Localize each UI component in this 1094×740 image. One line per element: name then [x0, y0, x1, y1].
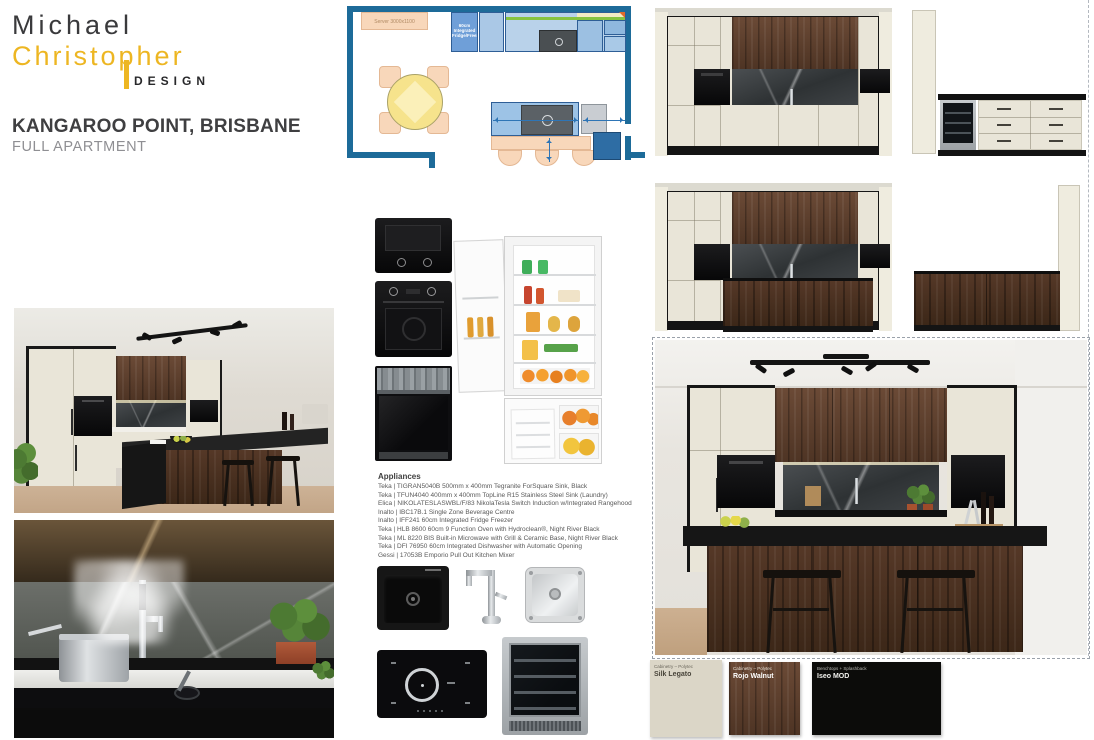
elev-soffit — [655, 8, 892, 16]
elev-panel-line — [818, 105, 819, 148]
plan-wall-left — [347, 6, 353, 158]
elev-kickboard — [667, 146, 879, 155]
microwave-dial — [397, 258, 406, 267]
dishwasher-racks — [377, 368, 450, 390]
drawer-handle — [1049, 140, 1063, 142]
brand-accent-bar — [124, 60, 129, 89]
island-panel-line — [811, 546, 812, 652]
cabinet-line — [690, 450, 775, 451]
fridge-cabinet — [504, 236, 602, 396]
dishwasher-kick — [379, 452, 448, 459]
plan-dining-table — [387, 74, 443, 130]
appliance-item: Teka | HLB 8600 60cm 9 Function Oven wit… — [378, 526, 633, 535]
black-sink-product — [377, 566, 449, 630]
track-light-mount — [823, 354, 869, 359]
drain-centre — [411, 597, 415, 601]
brand-name-line2: Christopher — [12, 41, 185, 72]
swatch-iseo-mod: Benchtops + Splashback Iseo MOD — [812, 662, 941, 735]
corner-screw — [578, 571, 582, 575]
photo-appliance-niche — [190, 400, 218, 422]
selection-marquee-edge — [1088, 0, 1089, 656]
photo-splashback — [116, 400, 186, 428]
bev-shelf — [945, 132, 971, 134]
hero-kitchen-photo — [655, 340, 1087, 655]
bottle — [467, 317, 474, 337]
oven-glass — [385, 308, 442, 350]
elev-panel-line — [778, 105, 779, 148]
undercabinet-light — [116, 400, 186, 403]
beverage-centre-product — [502, 637, 588, 735]
track-light-bar — [750, 360, 930, 365]
swatch-category: Benchtops + Splashback — [817, 666, 941, 672]
tap-body — [488, 570, 495, 616]
floor-plan: Server 3000x1100 60cm Integrated Fridge/… — [343, 4, 645, 168]
fruit-drawer — [520, 368, 590, 384]
elev-panel-line — [668, 220, 720, 221]
swatch-silk-legato: Cabinetry – Polytec Silk Legato — [650, 660, 722, 737]
fridge-shelf — [514, 274, 596, 276]
fridge-interior — [513, 245, 595, 389]
food-item — [538, 260, 548, 274]
food-item — [522, 340, 538, 360]
plan-server-label: Server 3000x1100 — [362, 19, 427, 25]
plan-island-overhang — [491, 136, 591, 150]
hero-appliance-niche — [951, 455, 1005, 508]
undercabinet-light — [783, 462, 939, 465]
page-subtitle: FULL APARTMENT — [12, 139, 147, 155]
freezer-drawer — [559, 405, 599, 429]
herb-plant — [310, 660, 334, 684]
drawer-handle — [997, 108, 1011, 110]
plan-wall-bottom — [347, 152, 435, 158]
microwave-dial — [423, 258, 432, 267]
bottle — [487, 317, 494, 337]
cabinet-handle — [71, 409, 73, 435]
sink-brand-mark — [425, 569, 441, 571]
drawer-handle — [997, 140, 1011, 142]
hero-tap — [855, 478, 858, 504]
drawer-handle — [997, 124, 1011, 126]
plan-cabinet-box4 — [604, 36, 626, 52]
elevation-main-run-with-island — [655, 183, 892, 333]
towel — [150, 440, 166, 444]
zone-mark — [447, 682, 455, 684]
swatch-rojo-walnut: Cabinetry – Polytec Rojo Walnut — [729, 662, 800, 735]
tap-base — [482, 616, 501, 624]
plan-fridge-label: 60cm Integrated Fridge/Freezer — [452, 23, 477, 38]
swatch-category: Cabinetry – Polytec — [654, 664, 722, 670]
elev-walnut-uppers — [732, 192, 858, 244]
elev-island-kick — [723, 326, 873, 332]
bev-shelf — [514, 659, 576, 662]
appliance-item: Inalto | IFF241 60cm Integrated Fridge F… — [378, 517, 633, 526]
plan-fridge-cabinet: 60cm Integrated Fridge/Freezer — [451, 12, 478, 52]
appliance-item: Gessi | 17053B Emporio Pull Out Kitchen … — [378, 552, 633, 561]
hero-benchtop — [775, 510, 947, 517]
elevation-beverage-run — [908, 8, 1086, 158]
island-door-line — [797, 281, 798, 326]
elev-microwave — [860, 69, 890, 93]
tap-lever — [495, 592, 508, 600]
oven-display — [406, 289, 420, 294]
appliances-list: Appliances Teka | TIGRAN5040B 500mm x 40… — [378, 472, 633, 560]
elev-oven — [694, 244, 730, 280]
elev-island-kick — [914, 325, 1060, 331]
bev-shelf — [945, 122, 971, 124]
kitchen-render-photo — [14, 308, 334, 513]
oven-handle — [383, 301, 444, 303]
swatch-name: Rojo Walnut — [733, 673, 800, 681]
zone-mark — [465, 662, 470, 664]
door-rack — [462, 296, 498, 299]
dishwasher-product — [375, 366, 452, 461]
corner-screw — [529, 571, 533, 575]
freezer-section — [504, 398, 602, 464]
food-item — [558, 290, 580, 302]
oven-controls — [82, 400, 104, 402]
freezer-open-door — [511, 409, 556, 460]
brand-name-line1: Michael — [12, 10, 133, 41]
microwave-product — [375, 218, 452, 273]
track-light-spot — [171, 336, 182, 345]
elev-microwave — [860, 244, 890, 268]
food-item — [526, 312, 540, 332]
appliance-item: Inalto | IBC17B.1 Single Zone Beverage C… — [378, 509, 633, 518]
bev-vent — [509, 721, 581, 731]
oven-controls — [729, 461, 763, 464]
page-title: KANGAROO POINT, BRISBANE — [12, 116, 301, 138]
plan-beverage-centre — [593, 132, 621, 160]
freezer-groove — [516, 446, 550, 448]
touch-controls — [417, 710, 447, 712]
plan-cabinet-box2 — [577, 20, 603, 52]
bev-shelf — [945, 112, 971, 114]
elev-oven — [694, 69, 730, 105]
track-light-spot — [841, 365, 854, 375]
oven-product — [375, 281, 452, 357]
elev-panel-line — [1030, 101, 1031, 149]
induction-cooktop-product — [377, 650, 487, 718]
drawer-handle — [1049, 108, 1063, 110]
timber-floor — [655, 608, 707, 655]
freezer-drawer — [559, 433, 599, 459]
elev-walnut-uppers — [732, 17, 858, 69]
cooktop-dial-ring — [405, 668, 439, 702]
elev-facade — [667, 16, 879, 149]
bev-shelf — [514, 691, 576, 694]
swatch-category: Cabinetry – Polytec — [733, 666, 800, 672]
brand-name-line3: DESIGN — [134, 74, 210, 88]
appliance-item: Teka | TIGRAN5040B 500mm x 400mm Tegrani… — [378, 483, 633, 492]
hero-walnut-uppers — [775, 388, 947, 462]
stool-rail — [773, 608, 829, 611]
food-item — [568, 316, 580, 332]
dishwasher-door — [379, 396, 448, 450]
elev-panel-line — [858, 17, 859, 148]
plan-dimension-h2 — [583, 120, 625, 121]
dial-dot — [421, 684, 424, 687]
corner-screw — [529, 616, 533, 620]
fridge-product — [456, 236, 602, 464]
appliance-item: Teka | ML 8220 BIS Built-in Microwave wi… — [378, 535, 633, 544]
stool-rail — [907, 608, 963, 611]
door-line — [832, 388, 833, 462]
elev-splashback — [732, 244, 858, 280]
dishwasher-top-edge — [377, 390, 450, 394]
sink-drain — [549, 588, 561, 600]
elev-tap — [790, 89, 793, 105]
food-item — [536, 288, 544, 304]
fruit-bowl — [170, 436, 192, 443]
plan-stool — [498, 150, 522, 166]
bev-shelf — [514, 707, 576, 710]
island-benchtop — [683, 526, 1047, 546]
elev-kickboard — [938, 150, 1086, 156]
elev-drawer-stack — [978, 100, 1082, 150]
track-light-spot — [783, 367, 796, 377]
corner-screw — [578, 616, 582, 620]
fridge-shelf — [514, 304, 596, 306]
island-panel-line — [917, 546, 918, 652]
freezer-groove — [516, 422, 550, 424]
elev-oven-controls — [701, 73, 723, 76]
plan-marker — [619, 12, 625, 18]
hero-oven — [717, 455, 775, 508]
plan-table-inlay — [394, 81, 436, 123]
elev-island-side — [914, 271, 1060, 325]
elev-tall-panel — [912, 10, 936, 154]
elev-panel-line — [668, 280, 720, 281]
wine-bottle — [989, 496, 994, 526]
photo-oven — [74, 396, 112, 436]
elev-tall-panel — [1058, 185, 1080, 331]
food-item — [524, 286, 532, 304]
island-door-line — [986, 274, 987, 325]
bev-shelf — [514, 675, 576, 678]
swatch-name: Iseo MOD — [817, 673, 941, 681]
appliances-heading: Appliances — [378, 472, 633, 481]
benchtop-closeup-photo — [14, 520, 334, 738]
oven-dial — [427, 287, 436, 296]
saucepan — [59, 638, 129, 682]
bev-glass — [943, 103, 973, 143]
elevation-main-run — [655, 8, 892, 158]
island-end-panel — [122, 441, 166, 509]
food-item — [544, 344, 578, 352]
drawer-handle — [1049, 124, 1063, 126]
bev-glass-door — [509, 643, 581, 717]
elevation-island-end — [908, 183, 1086, 333]
elev-splashback — [732, 69, 858, 105]
fruit-bowl — [717, 516, 751, 528]
plan-cooktop — [539, 30, 577, 52]
plan-dimension-v — [549, 138, 550, 162]
plan-server-box: Server 3000x1100 — [361, 12, 428, 30]
plan-dimension-h1 — [493, 120, 579, 121]
zone-mark — [391, 662, 396, 664]
plan-wall-right-ext — [625, 152, 645, 158]
swatch-name: Silk Legato — [654, 671, 722, 679]
bottle — [282, 412, 287, 430]
elev-soffit — [655, 183, 892, 191]
bottle — [477, 317, 484, 337]
photo-walnut-uppers — [116, 356, 186, 400]
plant — [14, 438, 38, 498]
elev-panel-line — [668, 105, 720, 106]
stainless-sink-product — [525, 567, 585, 623]
bench-decor-board — [805, 486, 821, 506]
plan-strip — [577, 13, 625, 17]
elev-beverage-centre — [940, 100, 976, 150]
fridge-open-door — [453, 239, 508, 393]
plan-cabinet-box3 — [604, 20, 626, 35]
microwave-window — [385, 225, 441, 251]
island-base — [707, 546, 1023, 652]
door-line — [889, 388, 890, 462]
zone-mark — [465, 702, 470, 704]
steam — [74, 560, 184, 644]
appliance-item: Elica | NIKOLATESLASWBL/F/83 NikolaTesla… — [378, 500, 633, 509]
lamp — [302, 404, 328, 424]
fridge-shelf — [514, 362, 596, 364]
cabinet-handle — [75, 445, 77, 471]
oven-cavity-ring — [402, 317, 426, 341]
bottle — [290, 414, 294, 430]
plan-cabinet-box — [479, 12, 504, 52]
appliance-item: Teka | DFI 76950 60cm Integrated Dishwas… — [378, 543, 633, 552]
oven-dial — [389, 287, 398, 296]
appliance-item: Teka | TFUN4040 400mm x 400mm TopLine R1… — [378, 492, 633, 501]
elev-panel-line — [668, 45, 720, 46]
mixer-tap-product — [462, 566, 514, 626]
wine-bottle — [981, 492, 986, 526]
elev-island-front — [723, 278, 873, 326]
food-item — [548, 316, 560, 332]
tap-outlet — [466, 576, 472, 586]
plan-cooktop-ring — [555, 38, 563, 46]
plan-wall-stub — [429, 152, 435, 168]
sink-drain — [406, 592, 420, 606]
fridge-shelf — [514, 334, 596, 336]
freezer-groove — [516, 434, 550, 436]
food-item — [522, 260, 532, 274]
zone-mark — [391, 702, 396, 704]
